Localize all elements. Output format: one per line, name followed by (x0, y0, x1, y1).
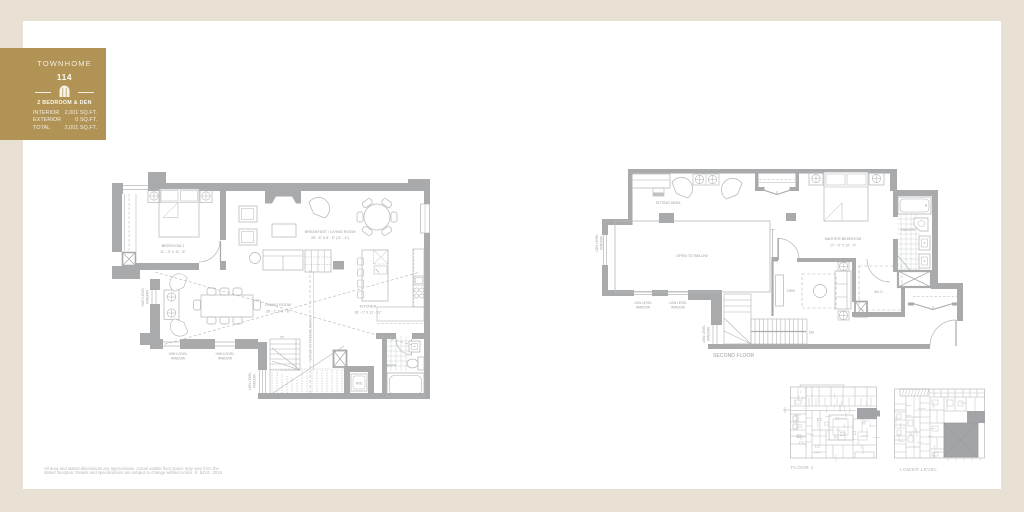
svg-text:DINING ROOM: DINING ROOM (265, 303, 291, 307)
svg-text:UP: UP (280, 335, 284, 339)
svg-text:DN: DN (809, 331, 814, 335)
svg-text:11' - 3" X 11' - 5": 11' - 3" X 11' - 5" (160, 250, 186, 254)
svg-text:30' - 1" X 9' - 8": 30' - 1" X 9' - 8" (266, 310, 291, 314)
svg-text:LOW LEVEL: LOW LEVEL (248, 372, 252, 390)
svg-text:WINDOW: WINDOW (171, 357, 185, 361)
svg-text:WINDOW: WINDOW (636, 306, 650, 310)
svg-text:W/D: W/D (356, 382, 363, 386)
svg-text:WINDOW: WINDOW (600, 236, 604, 250)
svg-text:SITTING AREA: SITTING AREA (656, 201, 681, 205)
svg-text:28' - 8" X 8' - 5" (11' - 4"): 28' - 8" X 8' - 5" (11' - 4") (311, 236, 349, 240)
svg-text:WINDOW: WINDOW (671, 306, 685, 310)
svg-text:HIGH LEVEL: HIGH LEVEL (141, 287, 145, 306)
svg-text:LOW LEVEL: LOW LEVEL (634, 301, 652, 305)
svg-text:HIGH LEVEL: HIGH LEVEL (169, 352, 188, 356)
svg-text:17' - 0" X 12' - 0": 17' - 0" X 12' - 0" (830, 244, 857, 248)
svg-text:BREAKFAST / LIVING ROOM: BREAKFAST / LIVING ROOM (305, 230, 356, 234)
svg-text:MASTER BEDROOM: MASTER BEDROOM (825, 237, 862, 241)
svg-text:WINDOW: WINDOW (146, 290, 150, 304)
svg-text:LOWER LEVEL: LOWER LEVEL (900, 467, 937, 473)
svg-text:LOW LEVEL: LOW LEVEL (595, 234, 599, 252)
svg-text:HIGH LEVEL: HIGH LEVEL (216, 352, 235, 356)
svg-text:DEN: DEN (787, 289, 795, 293)
svg-text:FLOOR 1: FLOOR 1 (791, 465, 814, 471)
svg-text:BEDROOM 2: BEDROOM 2 (162, 244, 185, 248)
svg-text:18' - 1" X 11' - 11": 18' - 1" X 11' - 11" (354, 311, 382, 315)
svg-text:OPEN TO BELOW: OPEN TO BELOW (676, 254, 708, 258)
svg-text:BATH: BATH (387, 364, 397, 368)
svg-text:EXTENT OF OPENING ABOVE: EXTENT OF OPENING ABOVE (309, 318, 313, 360)
svg-text:SECOND FLOOR: SECOND FLOOR (713, 353, 754, 359)
svg-text:WINDOW: WINDOW (707, 327, 711, 341)
svg-text:W.I.C.: W.I.C. (874, 290, 884, 294)
svg-text:LOW LEVEL: LOW LEVEL (669, 301, 687, 305)
svg-text:KITCHEN: KITCHEN (360, 305, 377, 309)
svg-text:LOW LEVEL: LOW LEVEL (702, 325, 706, 343)
svg-text:WINDOW: WINDOW (253, 374, 257, 388)
svg-text:WINDOW: WINDOW (218, 357, 232, 361)
svg-text:ENSUITE: ENSUITE (901, 228, 916, 232)
